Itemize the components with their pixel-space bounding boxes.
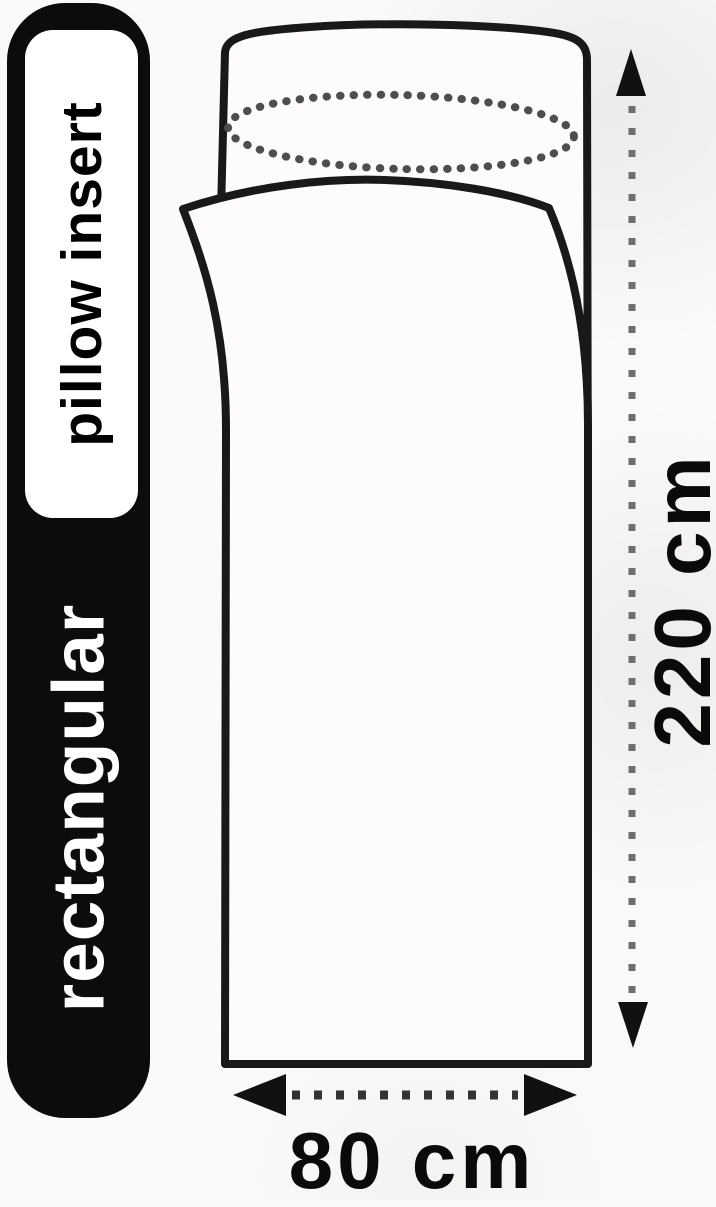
width-arrow	[233, 1074, 577, 1116]
arrow-right-icon	[524, 1074, 577, 1116]
liner-shape	[183, 180, 588, 1064]
liner-diagram-svg	[0, 0, 716, 1200]
arrow-down-icon	[618, 1002, 648, 1048]
product-diagram-page: pillow insert rectangular 220 cm 80 cm	[0, 0, 716, 1200]
height-dimension-label: 220 cm	[637, 452, 716, 747]
width-dimension-label: 80 cm	[289, 1115, 536, 1207]
arrow-left-icon	[233, 1074, 286, 1116]
arrow-up-icon	[616, 49, 646, 96]
